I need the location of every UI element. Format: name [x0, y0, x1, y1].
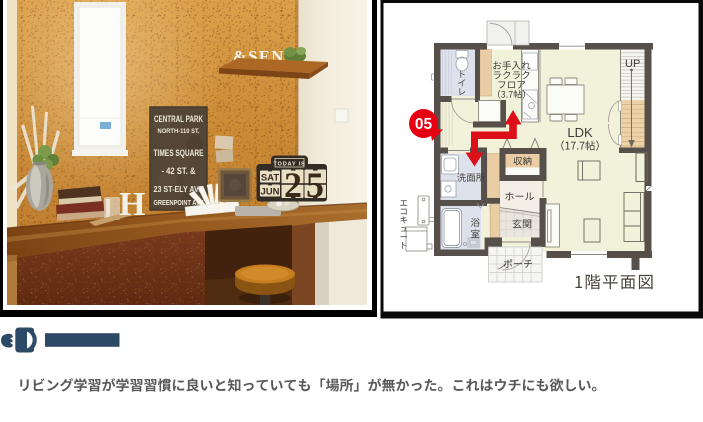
svg-text:JUN: JUN	[260, 187, 279, 198]
svg-text:TIMES SQUARE: TIMES SQUARE	[154, 148, 204, 158]
svg-text:NORTH-110 ST.: NORTH-110 ST.	[158, 128, 200, 135]
svg-text:LDK: LDK	[567, 125, 593, 140]
svg-text:H: H	[119, 186, 145, 223]
svg-text:CENTRAL PARK: CENTRAL PARK	[154, 114, 203, 124]
svg-text:23 ST-ELY AVE: 23 ST-ELY AVE	[154, 184, 204, 194]
svg-text:UP: UP	[625, 58, 640, 70]
svg-text:SAT: SAT	[261, 173, 279, 184]
svg-text:5: 5	[306, 165, 324, 205]
svg-text:- 42 ST. &: - 42 ST. &	[162, 166, 196, 176]
svg-text:2: 2	[284, 165, 302, 205]
svg-text:05: 05	[415, 116, 433, 133]
